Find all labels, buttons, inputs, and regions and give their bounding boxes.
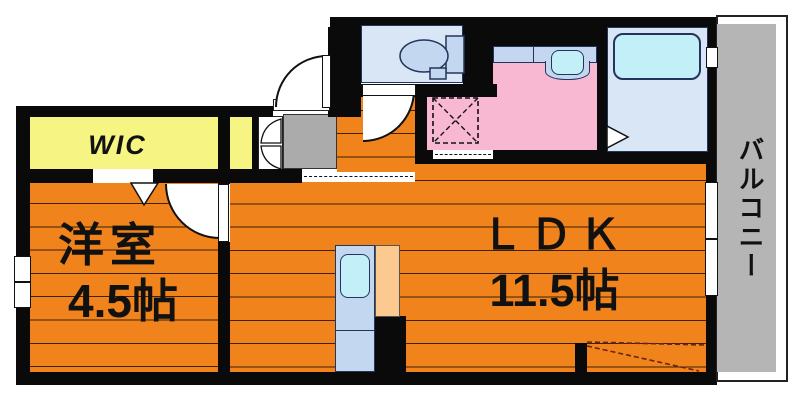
wall [16,106,30,385]
ldk-label: ＬＤＫ [462,213,647,257]
kitchen-sink [340,254,370,298]
entry-closet-door-box [258,116,283,172]
toilet-room [361,25,463,83]
wall [493,27,597,46]
hall-sliding-door [302,172,415,182]
kitchen-counter-peach [375,245,400,317]
wic-label: WIC [70,131,165,159]
entrance-floor [283,114,337,169]
entry-closet-floor [228,117,252,172]
entrance-door-arc [275,55,327,107]
vanity-counter-divider [533,47,534,62]
balcony-label: バルコニー [731,126,763,291]
wall [252,115,258,172]
ldk-size: 11.5帖 [452,267,657,314]
western-room-size: 4.5帖 [28,277,218,325]
wall [463,27,493,97]
western-room-label: 洋室 [35,221,185,269]
hall-sliding-door-track [304,176,413,177]
wall [218,106,230,385]
bathtub [613,33,701,80]
wall [328,27,361,117]
floor-plan: バルコニー [0,0,800,401]
wall [597,27,607,164]
wall [373,316,406,373]
window-balcony-rail [705,238,718,240]
wall [16,106,273,117]
wall [16,372,717,385]
toilet-door-leaf [362,84,416,96]
wic-door-opening [93,169,153,183]
wall [575,343,587,373]
kitchen-counter-divider [336,330,374,331]
vanity-sink [551,50,584,75]
wall [607,152,717,164]
washroom-sliding-door-track [435,154,491,155]
wall [230,169,302,183]
west-room-door-leaf [218,184,229,242]
entrance-door-leaf [322,55,331,108]
window-bath [706,47,718,68]
